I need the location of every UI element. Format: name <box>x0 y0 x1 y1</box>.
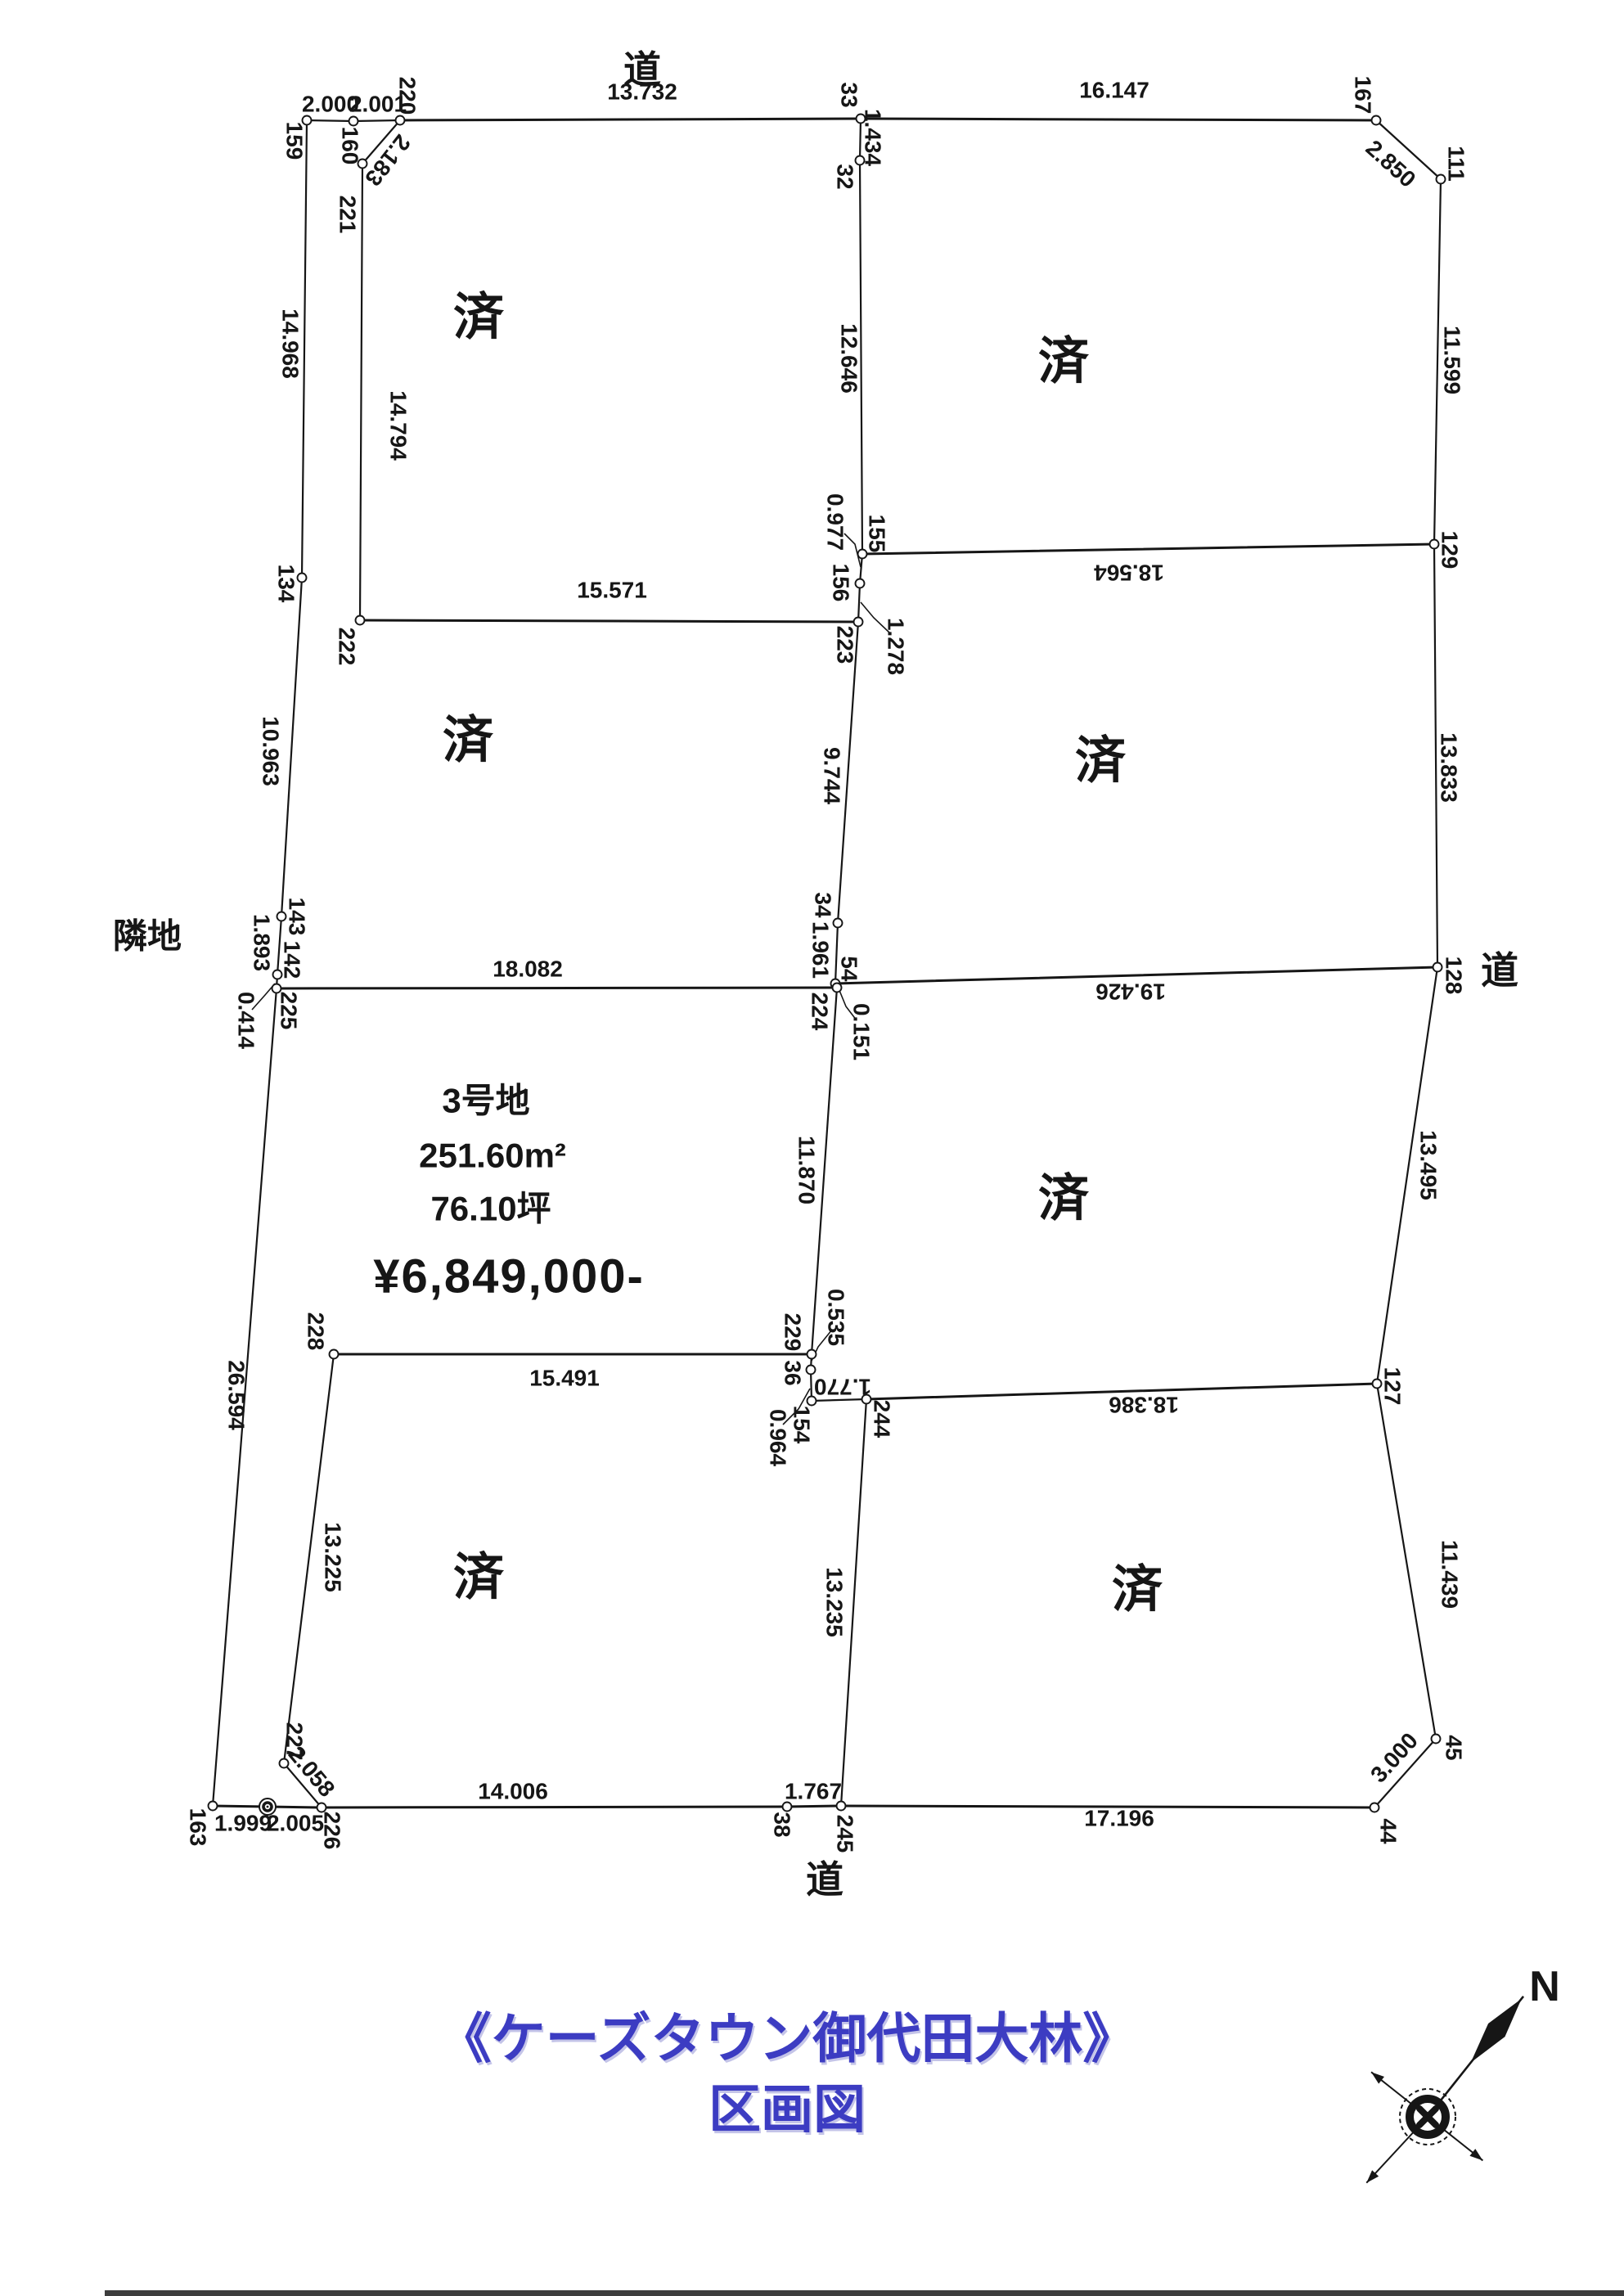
label-pt-15: 111 <box>1444 146 1469 182</box>
label-dim-29: 10.963 <box>259 716 284 786</box>
label-status-80: 済 <box>453 290 505 346</box>
compass-arrow-shaft-3 <box>1366 2117 1428 2183</box>
compass-arrowhead-2 <box>1469 2149 1482 2160</box>
label-pt-49: 34 <box>811 892 836 918</box>
label-pt-32: 142 <box>280 941 305 979</box>
label-dim-23: 11.439 <box>1437 1540 1463 1609</box>
label-status-82: 済 <box>443 713 494 769</box>
label-pt-33: 225 <box>277 992 302 1030</box>
label-pt-26: 44 <box>1376 1818 1401 1844</box>
label-dim-38: 14.794 <box>386 390 412 461</box>
label-dim-53: 0.151 <box>849 1003 875 1060</box>
label-dim-56: 11.870 <box>794 1136 820 1204</box>
label-pt-12: 33 <box>837 82 862 107</box>
label-status-83: 済 <box>1075 733 1127 790</box>
label-status-86: 済 <box>1112 1562 1163 1618</box>
label-dim-41: 12.646 <box>837 323 862 394</box>
label-dim-47: 18.564 <box>1094 560 1164 586</box>
label-pt-8: 159 <box>282 122 308 160</box>
label-status-81: 済 <box>1038 334 1090 390</box>
label-status-84: 済 <box>1038 1171 1090 1227</box>
label-dim-31: 1.893 <box>250 914 275 971</box>
boundary-segment-143-134 <box>281 578 302 916</box>
label-road-35: 隣地 <box>113 917 182 956</box>
label-pt-52: 224 <box>808 993 833 1031</box>
label-pt-63: 244 <box>870 1400 895 1438</box>
label-dim-79: 17.196 <box>1084 1806 1154 1831</box>
label-dim-67: 13.235 <box>822 1567 848 1637</box>
label-pt-9: 160 <box>338 127 363 165</box>
label-dim-21: 13.495 <box>1416 1130 1442 1200</box>
label-dim-74: 14.006 <box>478 1779 548 1804</box>
scan-artifact-0 <box>105 2290 1624 2296</box>
label-dim-6: 1.434 <box>861 109 886 166</box>
boundary-segment-220-33 <box>400 119 861 120</box>
boundary-segment-225-224 <box>277 988 837 988</box>
boundary-segment-245-38 <box>787 1806 841 1807</box>
label-status-85: 済 <box>453 1550 505 1606</box>
vertex-156 <box>856 579 865 588</box>
label-dim-65: 15.491 <box>529 1366 600 1391</box>
label-dim-61: 0.964 <box>766 1409 791 1466</box>
label-dim-5: 2.183 <box>360 130 416 191</box>
label-dim-36: 26.594 <box>224 1360 250 1430</box>
vertex-160 <box>349 117 358 126</box>
label-dim-7: 2.850 <box>1361 135 1421 192</box>
label-dim-48: 9.744 <box>820 747 845 804</box>
label-dim-16: 11.599 <box>1440 326 1465 394</box>
vertex-229 <box>808 1350 816 1359</box>
label-pt-11: 221 <box>335 196 361 234</box>
boundary-segment-33-167 <box>861 119 1376 120</box>
label-road-20: 道 <box>1481 949 1518 992</box>
label-pt-64: 228 <box>304 1312 329 1351</box>
label-dim-55: 19.426 <box>1095 979 1166 1005</box>
label-dim-40: 15.571 <box>577 578 647 603</box>
map-title-line2: 区画図 <box>438 2083 1137 2136</box>
boundary-segment-159-160 <box>307 120 353 121</box>
label-pt-43: 155 <box>865 515 890 553</box>
label-plotinfo-88: 251.60m² <box>419 1137 566 1175</box>
vertex-34 <box>834 919 843 928</box>
label-dim-46: 1.278 <box>884 618 909 675</box>
label-dim-18: 13.833 <box>1437 732 1462 803</box>
label-pt-60: 154 <box>790 1406 815 1444</box>
label-dim-3: 16.147 <box>1079 78 1149 103</box>
vertex-220 <box>396 116 405 125</box>
compass-arrowhead-1 <box>1371 2072 1384 2083</box>
label-dim-42: 0.977 <box>823 493 848 551</box>
boundary-segment-160-220 <box>353 120 400 121</box>
vertex-222 <box>356 616 365 625</box>
label-dim-66: 13.225 <box>321 1522 346 1592</box>
boundary-segment-155-129 <box>862 544 1434 554</box>
survey-map-page: 2.0002.00113.73216.147道2.1831.4342.85015… <box>0 0 1624 2296</box>
label-pt-14: 167 <box>1351 76 1376 115</box>
label-pt-75: 38 <box>770 1812 795 1837</box>
label-road-78: 道 <box>806 1858 843 1901</box>
label-pt-44: 156 <box>829 564 854 602</box>
compass-north-label: N <box>1529 1963 1560 2010</box>
label-plotinfo-89: 76.10坪 <box>430 1190 551 1228</box>
label-pt-59: 36 <box>781 1360 806 1385</box>
label-dim-72: 1.999 <box>214 1811 272 1836</box>
label-dim-25: 3.000 <box>1365 1728 1423 1788</box>
label-pt-30: 143 <box>285 898 310 936</box>
label-pt-22: 127 <box>1380 1367 1406 1406</box>
plot-map: 2.0002.00113.73216.147道2.1831.4342.85015… <box>0 0 1624 2296</box>
vertex-128 <box>1433 963 1442 972</box>
label-dim-54: 18.082 <box>493 957 563 982</box>
label-pt-51: 54 <box>837 956 862 982</box>
label-dim-27: 14.968 <box>278 308 304 379</box>
boundary-segment-38-226 <box>322 1807 787 1808</box>
label-pt-10: 220 <box>395 77 421 115</box>
label-pt-37: 163 <box>186 1808 211 1847</box>
label-dim-73: 2.005 <box>267 1811 324 1836</box>
label-pt-77: 245 <box>833 1815 858 1853</box>
vertex-44 <box>1370 1803 1379 1812</box>
label-dim-68: 18.386 <box>1109 1393 1179 1418</box>
label-road-4: 道 <box>623 48 661 91</box>
benchmark-dot-BM <box>267 1806 269 1808</box>
label-pt-17: 129 <box>1437 531 1463 569</box>
boundary-segment-156-223 <box>858 583 860 622</box>
label-pt-39: 222 <box>335 628 360 666</box>
vertex-224 <box>833 984 842 993</box>
map-title: 《ケーズタウン御代田大林》 区画図 <box>438 2011 1137 2136</box>
label-dim-62: 1.770 <box>814 1375 871 1400</box>
vertex-36 <box>807 1366 816 1375</box>
label-price-90: ¥6,849,000- <box>373 1250 645 1303</box>
boundary-segment-127-45 <box>1377 1384 1436 1739</box>
label-pt-28: 134 <box>274 565 299 603</box>
label-pt-19: 128 <box>1442 957 1467 995</box>
label-pt-45: 223 <box>833 626 858 664</box>
label-pt-13: 32 <box>833 164 858 189</box>
boundary-segment-222-223 <box>360 620 858 622</box>
vertex-228 <box>330 1350 339 1359</box>
label-dim-76: 1.767 <box>785 1779 842 1804</box>
label-dim-58: 0.535 <box>824 1289 849 1346</box>
label-dim-50: 1.961 <box>808 921 834 979</box>
label-plotinfo-87: 3号地 <box>442 1082 529 1120</box>
label-pt-57: 229 <box>781 1313 806 1352</box>
vertex-45 <box>1432 1735 1441 1744</box>
map-title-line1: 《ケーズタウン御代田大林》 <box>438 2011 1137 2065</box>
vertex-167 <box>1372 116 1381 125</box>
label-pt-24: 45 <box>1442 1735 1467 1760</box>
label-dim-34: 0.414 <box>234 992 259 1049</box>
compass-north-arrowhead <box>1471 1999 1522 2063</box>
